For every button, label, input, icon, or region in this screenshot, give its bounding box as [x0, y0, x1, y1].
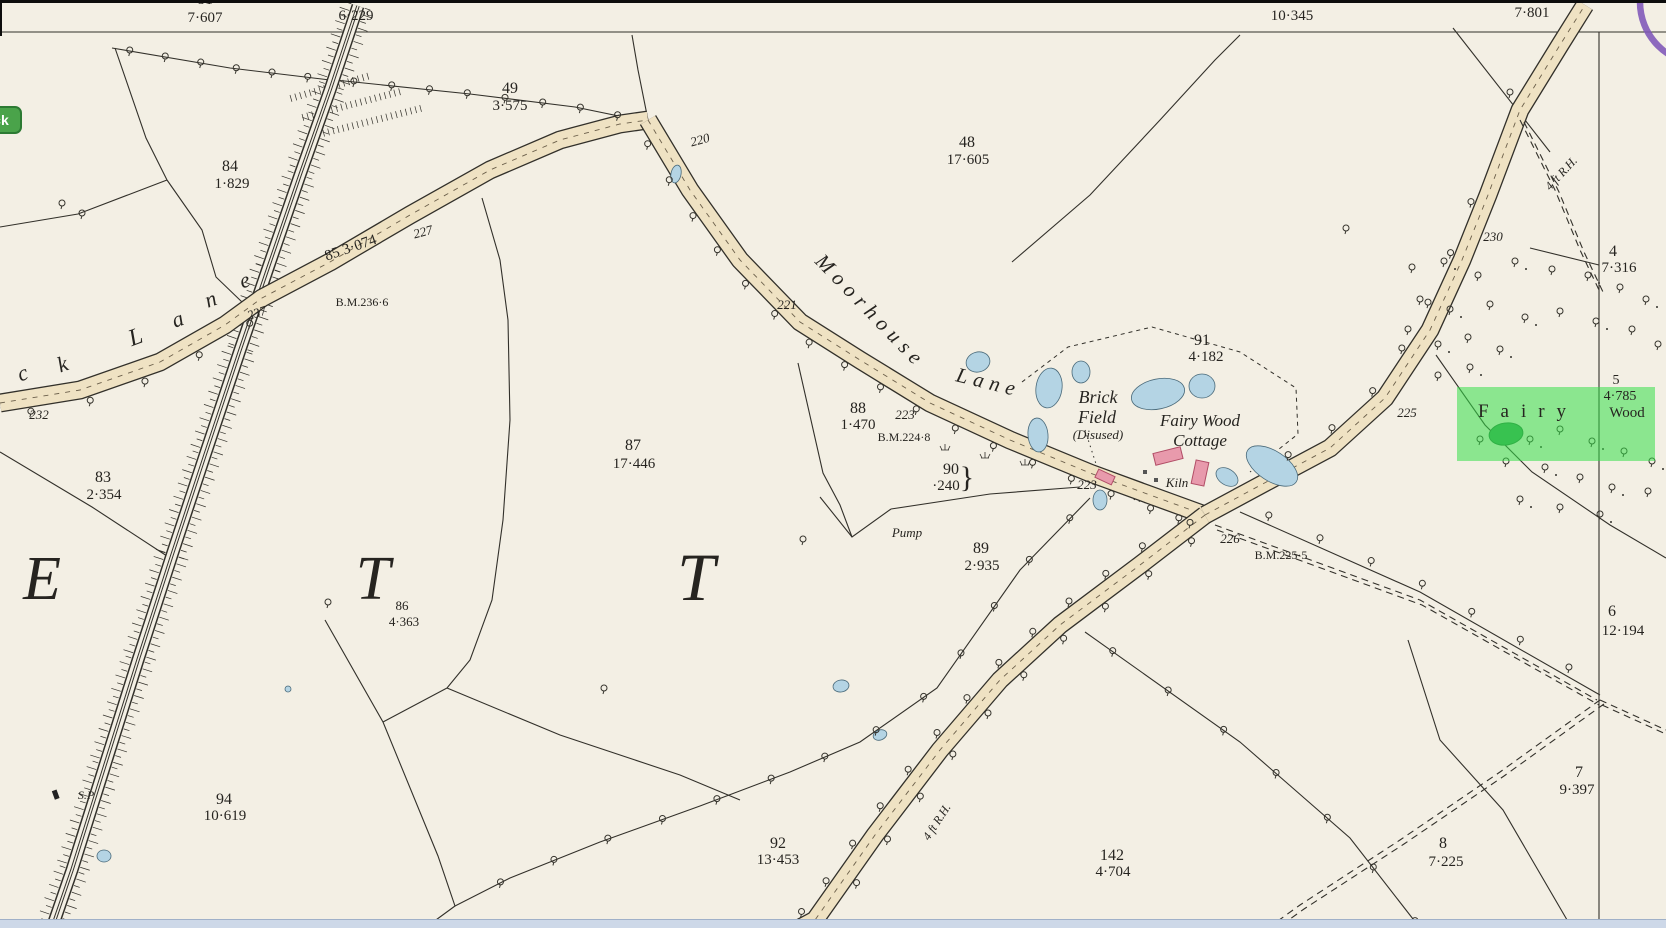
map-label: 223 — [895, 407, 915, 422]
map-label: 4 — [1609, 243, 1617, 260]
map-label: 10·345 — [1271, 8, 1314, 24]
map-label: 6 — [1608, 603, 1616, 620]
map-label: 225 — [1397, 405, 1417, 420]
map-label: 230 — [1483, 229, 1503, 244]
map-label: 1·829 — [215, 176, 250, 192]
map-viewport[interactable]: 817·607986·22910·3457·801493·5754817·605… — [0, 0, 1666, 928]
map-label: 7·316 — [1602, 260, 1637, 276]
map-label: 90 — [943, 461, 959, 478]
map-label: S.P — [78, 788, 95, 802]
map-label: Fairy — [1478, 401, 1578, 422]
map-label: 3·575 — [493, 98, 528, 114]
map-label: } — [960, 461, 974, 494]
map-label: 221 — [777, 297, 797, 312]
top-edge-strip — [0, 0, 1666, 3]
map-label: 2·935 — [965, 558, 1000, 574]
map-label: Cottage — [1173, 431, 1227, 450]
map-label: Kiln — [1165, 475, 1188, 490]
map-label: 49 — [502, 80, 518, 97]
map-label: Brick — [1079, 387, 1119, 407]
map-label: 87 — [625, 437, 641, 454]
map-label: 86 — [396, 598, 410, 613]
map-label: 12·194 — [1602, 623, 1645, 639]
map-label: Field — [1077, 407, 1117, 427]
map-label: 9·397 — [1560, 782, 1595, 798]
map-label: 17·446 — [613, 456, 656, 472]
map-label: B.M.225·5 — [1255, 548, 1308, 562]
map-label: B.M.236·6 — [336, 295, 389, 309]
map-label: 4·182 — [1189, 349, 1224, 365]
map-label: 83 — [95, 469, 111, 486]
map-label: 1·470 — [841, 417, 876, 433]
map-label: 7·225 — [1429, 854, 1464, 870]
map-label: 7·801 — [1515, 5, 1550, 21]
map-label: T — [356, 545, 395, 613]
map-label: 142 — [1100, 847, 1124, 864]
map-label: 7 — [1575, 764, 1583, 781]
map-label: 88 — [850, 400, 866, 417]
map-label: 232 — [29, 407, 49, 422]
map-label: 94 — [216, 791, 232, 808]
map-label: ·240 — [932, 478, 960, 494]
map-label: 4·785 — [1604, 389, 1637, 404]
map-label: 7·607 — [188, 10, 223, 26]
map-label: 2·354 — [87, 487, 122, 503]
map-label: 13·453 — [757, 852, 800, 868]
map-label: 5 — [1613, 373, 1620, 388]
map-label: 4·704 — [1096, 864, 1131, 880]
back-button[interactable]: Back — [0, 106, 22, 134]
map-label: 91 — [1194, 332, 1210, 349]
left-edge-strip — [0, 0, 2, 36]
map-label: 89 — [973, 540, 989, 557]
map-label: Wood — [1609, 405, 1645, 421]
map-label: 48 — [959, 134, 975, 151]
map-label: 6·229 — [339, 8, 374, 24]
map-label: 223 — [1077, 477, 1097, 492]
map-label: Pump — [891, 525, 923, 540]
map-label: T — [677, 539, 719, 615]
map-label: 226 — [1220, 531, 1240, 546]
map-label: 92 — [770, 835, 786, 852]
map-label: 8 — [1439, 835, 1447, 852]
map-viewer: 817·607986·22910·3457·801493·5754817·605… — [0, 0, 1666, 928]
map-label: E — [22, 545, 61, 613]
map-label: B.M.224·8 — [878, 430, 931, 444]
map-label: Fairy Wood — [1159, 411, 1241, 430]
map-label: 17·605 — [947, 152, 990, 168]
horizontal-scrollbar[interactable] — [0, 919, 1666, 928]
map-label: (Disused) — [1073, 427, 1124, 442]
map-label: 10·619 — [204, 808, 247, 824]
map-label: 4·363 — [389, 614, 419, 629]
map-label: 84 — [222, 158, 238, 175]
